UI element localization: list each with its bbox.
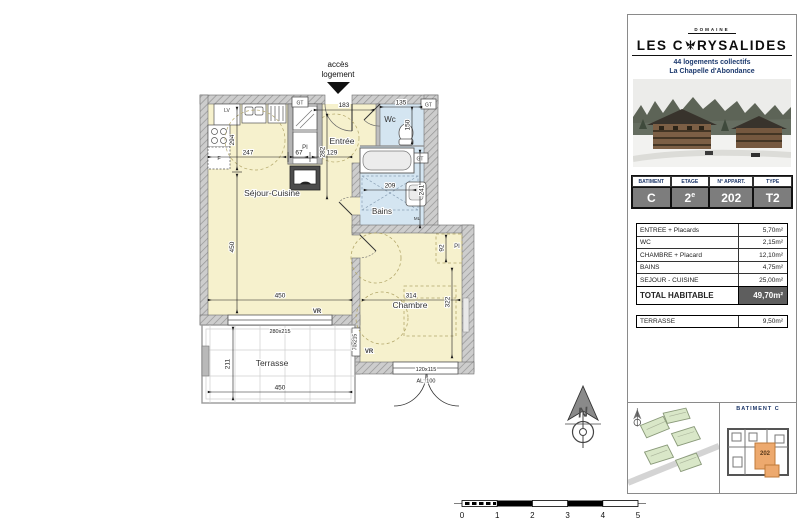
area-row: CHAMBRE + Placard 12,10m²	[637, 249, 787, 262]
label-entree: Entrée	[329, 136, 354, 146]
brand-subtitle-1: 44 logements collectifs	[632, 59, 792, 68]
scale-tick-5: 5	[636, 511, 641, 520]
label-terrasse: Terrasse	[256, 358, 289, 368]
total-label: TOTAL HABITABLE	[637, 287, 738, 304]
terrace-label: TERRASSE	[637, 316, 738, 328]
dim-window-sejour: 280x215	[269, 329, 290, 335]
brand-name-post: RYSALIDES	[697, 38, 787, 53]
label-sejour: Séjour-Cuisine	[244, 188, 300, 198]
dim-bains-w: 209	[385, 183, 396, 190]
info-sidebar: DOMAINE LES CRYSALIDES 44 logements coll…	[627, 14, 797, 494]
map-section: BATIMENT C 202	[628, 402, 796, 493]
label-vr-1: VR	[313, 309, 322, 315]
access-arrow: accès logement	[322, 60, 356, 94]
label-ml: ML	[414, 216, 421, 221]
project-photo	[633, 79, 791, 167]
dim-door-terrasse: 70x215	[353, 334, 359, 351]
total-row: TOTAL HABITABLE 49,70m²	[636, 287, 788, 305]
label-pi-1: PI	[302, 145, 308, 151]
brand-name-pre: LES C	[637, 38, 684, 53]
brand-domaine: DOMAINE	[688, 27, 735, 34]
area-row: ENTREE + Placards 5,70m²	[637, 224, 787, 237]
batiment-panel: BATIMENT C 202	[720, 403, 796, 493]
dim-wc-d: 150	[405, 119, 412, 130]
area-row: SEJOUR - CUISINE 25,00m²	[637, 274, 787, 286]
dim-window-chambre: 120x115	[416, 367, 437, 373]
batiment-plan-svg: 202	[723, 413, 793, 485]
areas-table: ENTREE + Placards 5,70m² WC 2,15m² CHAMB…	[636, 223, 788, 287]
area-value: 4,75m²	[738, 262, 787, 274]
dim-kitchen-d: 294	[229, 134, 236, 145]
area-label: ENTREE + Placards	[637, 224, 738, 236]
area-row: BAINS 4,75m²	[637, 262, 787, 275]
area-label: WC	[637, 237, 738, 249]
unit-value-appart: 202	[709, 187, 753, 208]
unit-header-batiment: BATIMENT	[632, 176, 671, 187]
scale-tick-1: 1	[495, 511, 500, 520]
closet-column: PI	[288, 104, 322, 190]
area-value: 25,00m²	[738, 274, 787, 286]
area-value: 12,10m²	[738, 249, 787, 261]
area-label: BAINS	[637, 262, 738, 274]
label-gt-2: GT	[425, 103, 432, 109]
unit-value-etage: 2e	[671, 187, 710, 208]
site-plan-svg	[628, 403, 719, 493]
total-value: 49,70m²	[738, 287, 787, 304]
scale-bar: 0 1 2 3 4 5	[454, 501, 646, 521]
etage-sup: e	[691, 192, 695, 199]
access-label-2: logement	[322, 70, 356, 79]
unit-table: BATIMENT ETAGE N° APPART. TYPE C 2e 202 …	[631, 175, 793, 209]
dim-wc-w: 135	[396, 100, 407, 107]
dim-allege: AL: 100	[417, 379, 436, 385]
unit-header-appart: N° APPART.	[709, 176, 753, 187]
label-wc: Wc	[384, 115, 396, 124]
terrace-row: TERRASSE 9,50m²	[636, 315, 788, 329]
dim-closet-w: 67	[295, 150, 303, 157]
unit-value-batiment: C	[632, 187, 671, 208]
dim-hall-w: 129	[327, 150, 338, 157]
dim-entree-d: 282	[320, 146, 327, 157]
batiment-label: BATIMENT C	[736, 406, 780, 412]
brand-block: DOMAINE LES CRYSALIDES 44 logements coll…	[628, 15, 796, 169]
unit-header-etage: ETAGE	[671, 176, 710, 187]
dim-entree-w: 183	[339, 102, 350, 109]
butterfly-icon	[685, 38, 696, 53]
access-label-1: accès	[328, 60, 349, 69]
dim-terrasse-d: 211	[225, 358, 232, 369]
terrasse-pillar	[202, 346, 209, 376]
dim-chambre-w: 314	[406, 293, 417, 300]
site-plan	[628, 403, 720, 493]
scale-tick-2: 2	[530, 511, 535, 520]
brand-name: LES CRYSALIDES	[632, 37, 792, 56]
area-row: WC 2,15m²	[637, 237, 787, 250]
label-chambre: Chambre	[393, 300, 428, 310]
label-bains: Bains	[372, 207, 392, 216]
area-label: SEJOUR - CUISINE	[637, 274, 738, 286]
label-lv: LV	[224, 108, 230, 114]
area-value: 2,15m²	[738, 237, 787, 249]
radiator	[463, 298, 469, 332]
label-pi-2: PI	[454, 244, 460, 250]
label-gt-1: GT	[297, 101, 304, 107]
compass-icon: N	[565, 386, 601, 448]
area-value: 5,70m²	[738, 224, 787, 236]
unit-value-type: T2	[753, 187, 792, 208]
scale-tick-3: 3	[565, 511, 570, 520]
dim-placard-d: 92	[439, 244, 446, 252]
dim-sejour-d: 450	[229, 241, 236, 252]
dim-kitchen-w: 247	[243, 150, 254, 157]
floorplan-page: accès logement LV F PI GT	[0, 0, 800, 527]
brand-subtitle-2: La Chapelle d'Abondance	[632, 68, 792, 77]
scale-tick-0: 0	[460, 511, 465, 520]
scale-tick-4: 4	[601, 511, 606, 520]
dim-terrasse-w: 450	[275, 385, 286, 392]
label-vr-2: VR	[365, 349, 374, 355]
terrace-value: 9,50m²	[738, 316, 787, 328]
dim-sejour-w: 450	[275, 293, 286, 300]
unit-number: 202	[760, 451, 771, 457]
dim-bains-d: 241	[419, 184, 426, 195]
unit-header-type: TYPE	[753, 176, 792, 187]
dim-chambre-d: 322	[445, 296, 452, 307]
area-label: CHAMBRE + Placard	[637, 249, 738, 261]
